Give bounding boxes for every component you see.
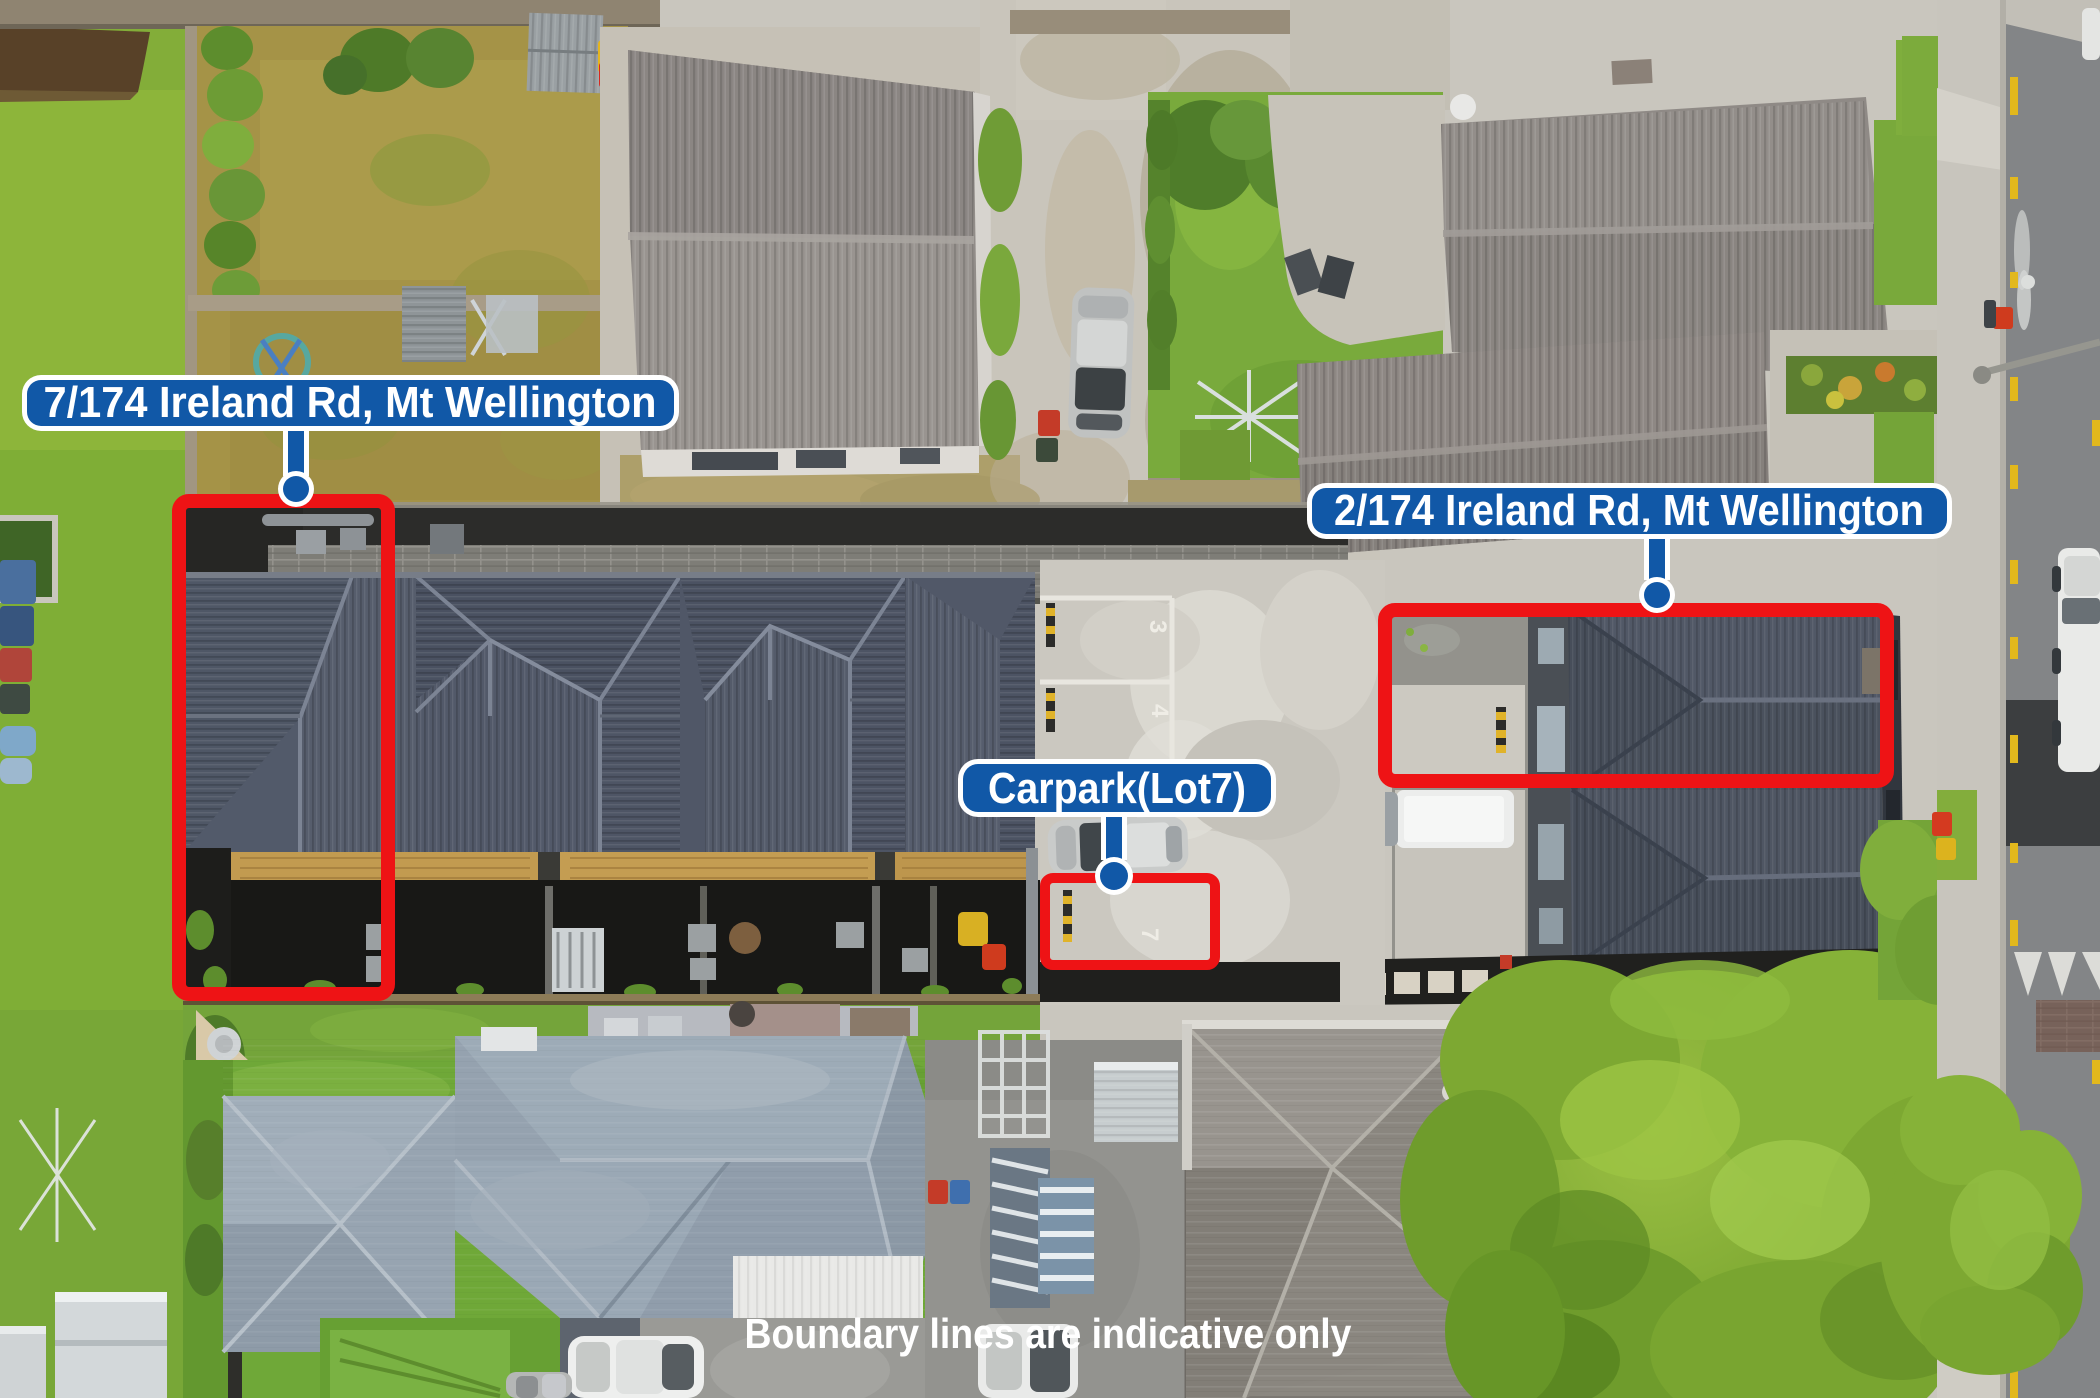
svg-text:Carpark(Lot7): Carpark(Lot7)	[988, 764, 1246, 813]
svg-text:7: 7	[1136, 928, 1163, 941]
svg-text:2/174 Ireland Rd, Mt Wellingto: 2/174 Ireland Rd, Mt Wellington	[1334, 486, 1924, 535]
svg-text:Boundary lines are indicative: Boundary lines are indicative only	[745, 1310, 1353, 1357]
svg-text:7/174 Ireland Rd, Mt Wellingto: 7/174 Ireland Rd, Mt Wellington	[44, 378, 657, 427]
svg-text:3: 3	[1144, 620, 1171, 633]
svg-text:4: 4	[1146, 704, 1173, 718]
